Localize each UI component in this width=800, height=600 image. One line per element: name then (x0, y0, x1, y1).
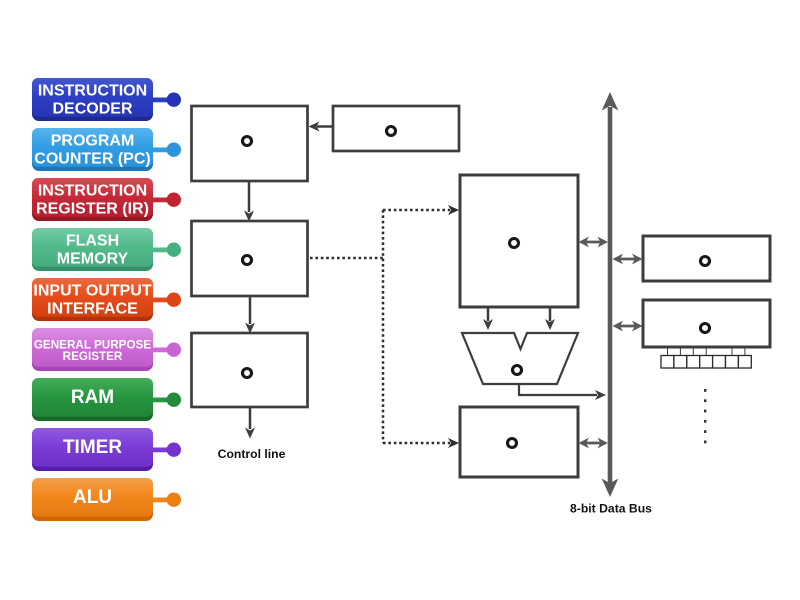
svg-text:Control line: Control line (218, 447, 286, 461)
svg-text:8-bit Data Bus: 8-bit Data Bus (570, 502, 652, 516)
svg-text:INTERFACE: INTERFACE (47, 301, 138, 318)
svg-text:PROGRAM: PROGRAM (51, 132, 135, 149)
svg-text:FLASH: FLASH (66, 232, 119, 249)
svg-text:INPUT OUTPUT: INPUT OUTPUT (33, 282, 151, 299)
svg-text:DECODER: DECODER (52, 101, 132, 118)
svg-text:ALU: ALU (73, 487, 112, 508)
svg-text:RAM: RAM (71, 387, 114, 408)
svg-text:REGISTER (IR): REGISTER (IR) (36, 201, 149, 218)
svg-text:MEMORY: MEMORY (57, 251, 129, 268)
svg-text:REGISTER: REGISTER (63, 350, 123, 363)
svg-text:INSTRUCTION: INSTRUCTION (38, 82, 147, 99)
svg-text:COUNTER (PC): COUNTER (PC) (34, 151, 150, 168)
svg-text:TIMER: TIMER (63, 437, 122, 458)
svg-text:INSTRUCTION: INSTRUCTION (38, 182, 147, 199)
